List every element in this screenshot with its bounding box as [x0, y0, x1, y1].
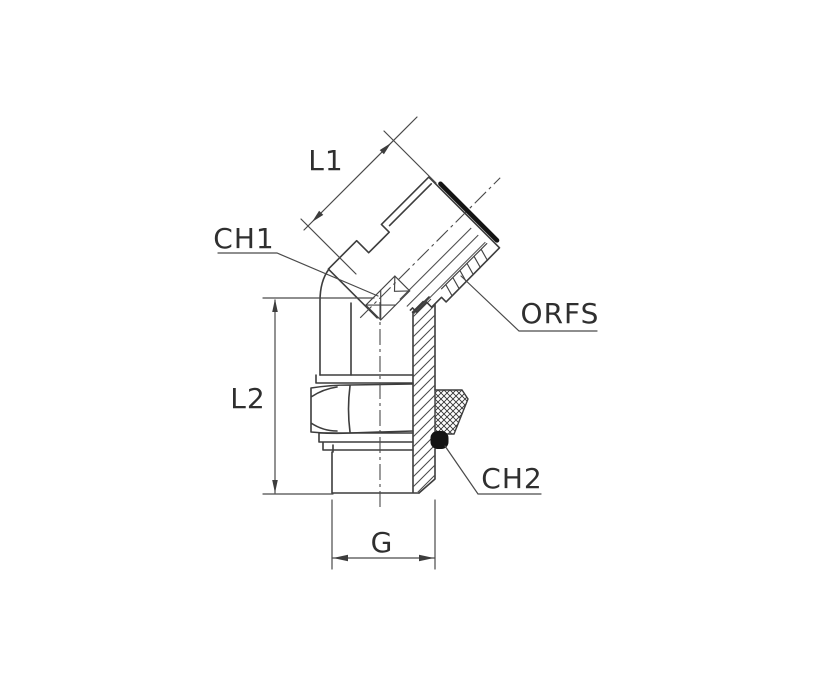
locknut-hex	[311, 384, 413, 433]
l2-arrow-top	[272, 299, 278, 312]
g-arrow-left	[333, 555, 348, 561]
label-l2: L2	[230, 382, 265, 415]
locknut-outline	[311, 384, 413, 433]
male-thread-outline	[332, 452, 419, 493]
ch1-leader-line	[218, 253, 378, 296]
dim-l2: L2	[230, 298, 374, 494]
arm-section-hatch	[398, 227, 486, 315]
label-orfs: ORFS	[521, 297, 600, 330]
back-washer-stack	[319, 433, 413, 452]
elbow-outer-curve	[320, 269, 329, 375]
dim-g: G	[332, 500, 435, 569]
drawing-page: L1 CH1 ORFS L2 CH2 G	[0, 0, 828, 691]
adjustable-washer	[435, 390, 468, 434]
dim-l1: L1	[301, 117, 436, 274]
body-step-plate	[316, 375, 413, 383]
leader-orfs: ORFS	[461, 276, 599, 331]
male-thread	[332, 452, 419, 493]
washer-cross-section	[435, 390, 468, 434]
leader-ch1: CH1	[213, 222, 378, 296]
l2-extension-lines	[263, 298, 374, 494]
technical-drawing-canvas: L1 CH1 ORFS L2 CH2 G	[0, 0, 828, 691]
label-l1: L1	[308, 144, 343, 177]
label-ch1: CH1	[213, 222, 274, 255]
section-hatch-band	[413, 297, 435, 492]
l2-arrow-bottom	[272, 480, 278, 493]
leader-ch2: CH2	[445, 446, 543, 495]
label-g: G	[371, 526, 394, 559]
washer-stack-lines	[319, 433, 413, 452]
g-arrow-right	[419, 555, 434, 561]
label-ch2: CH2	[481, 462, 542, 495]
